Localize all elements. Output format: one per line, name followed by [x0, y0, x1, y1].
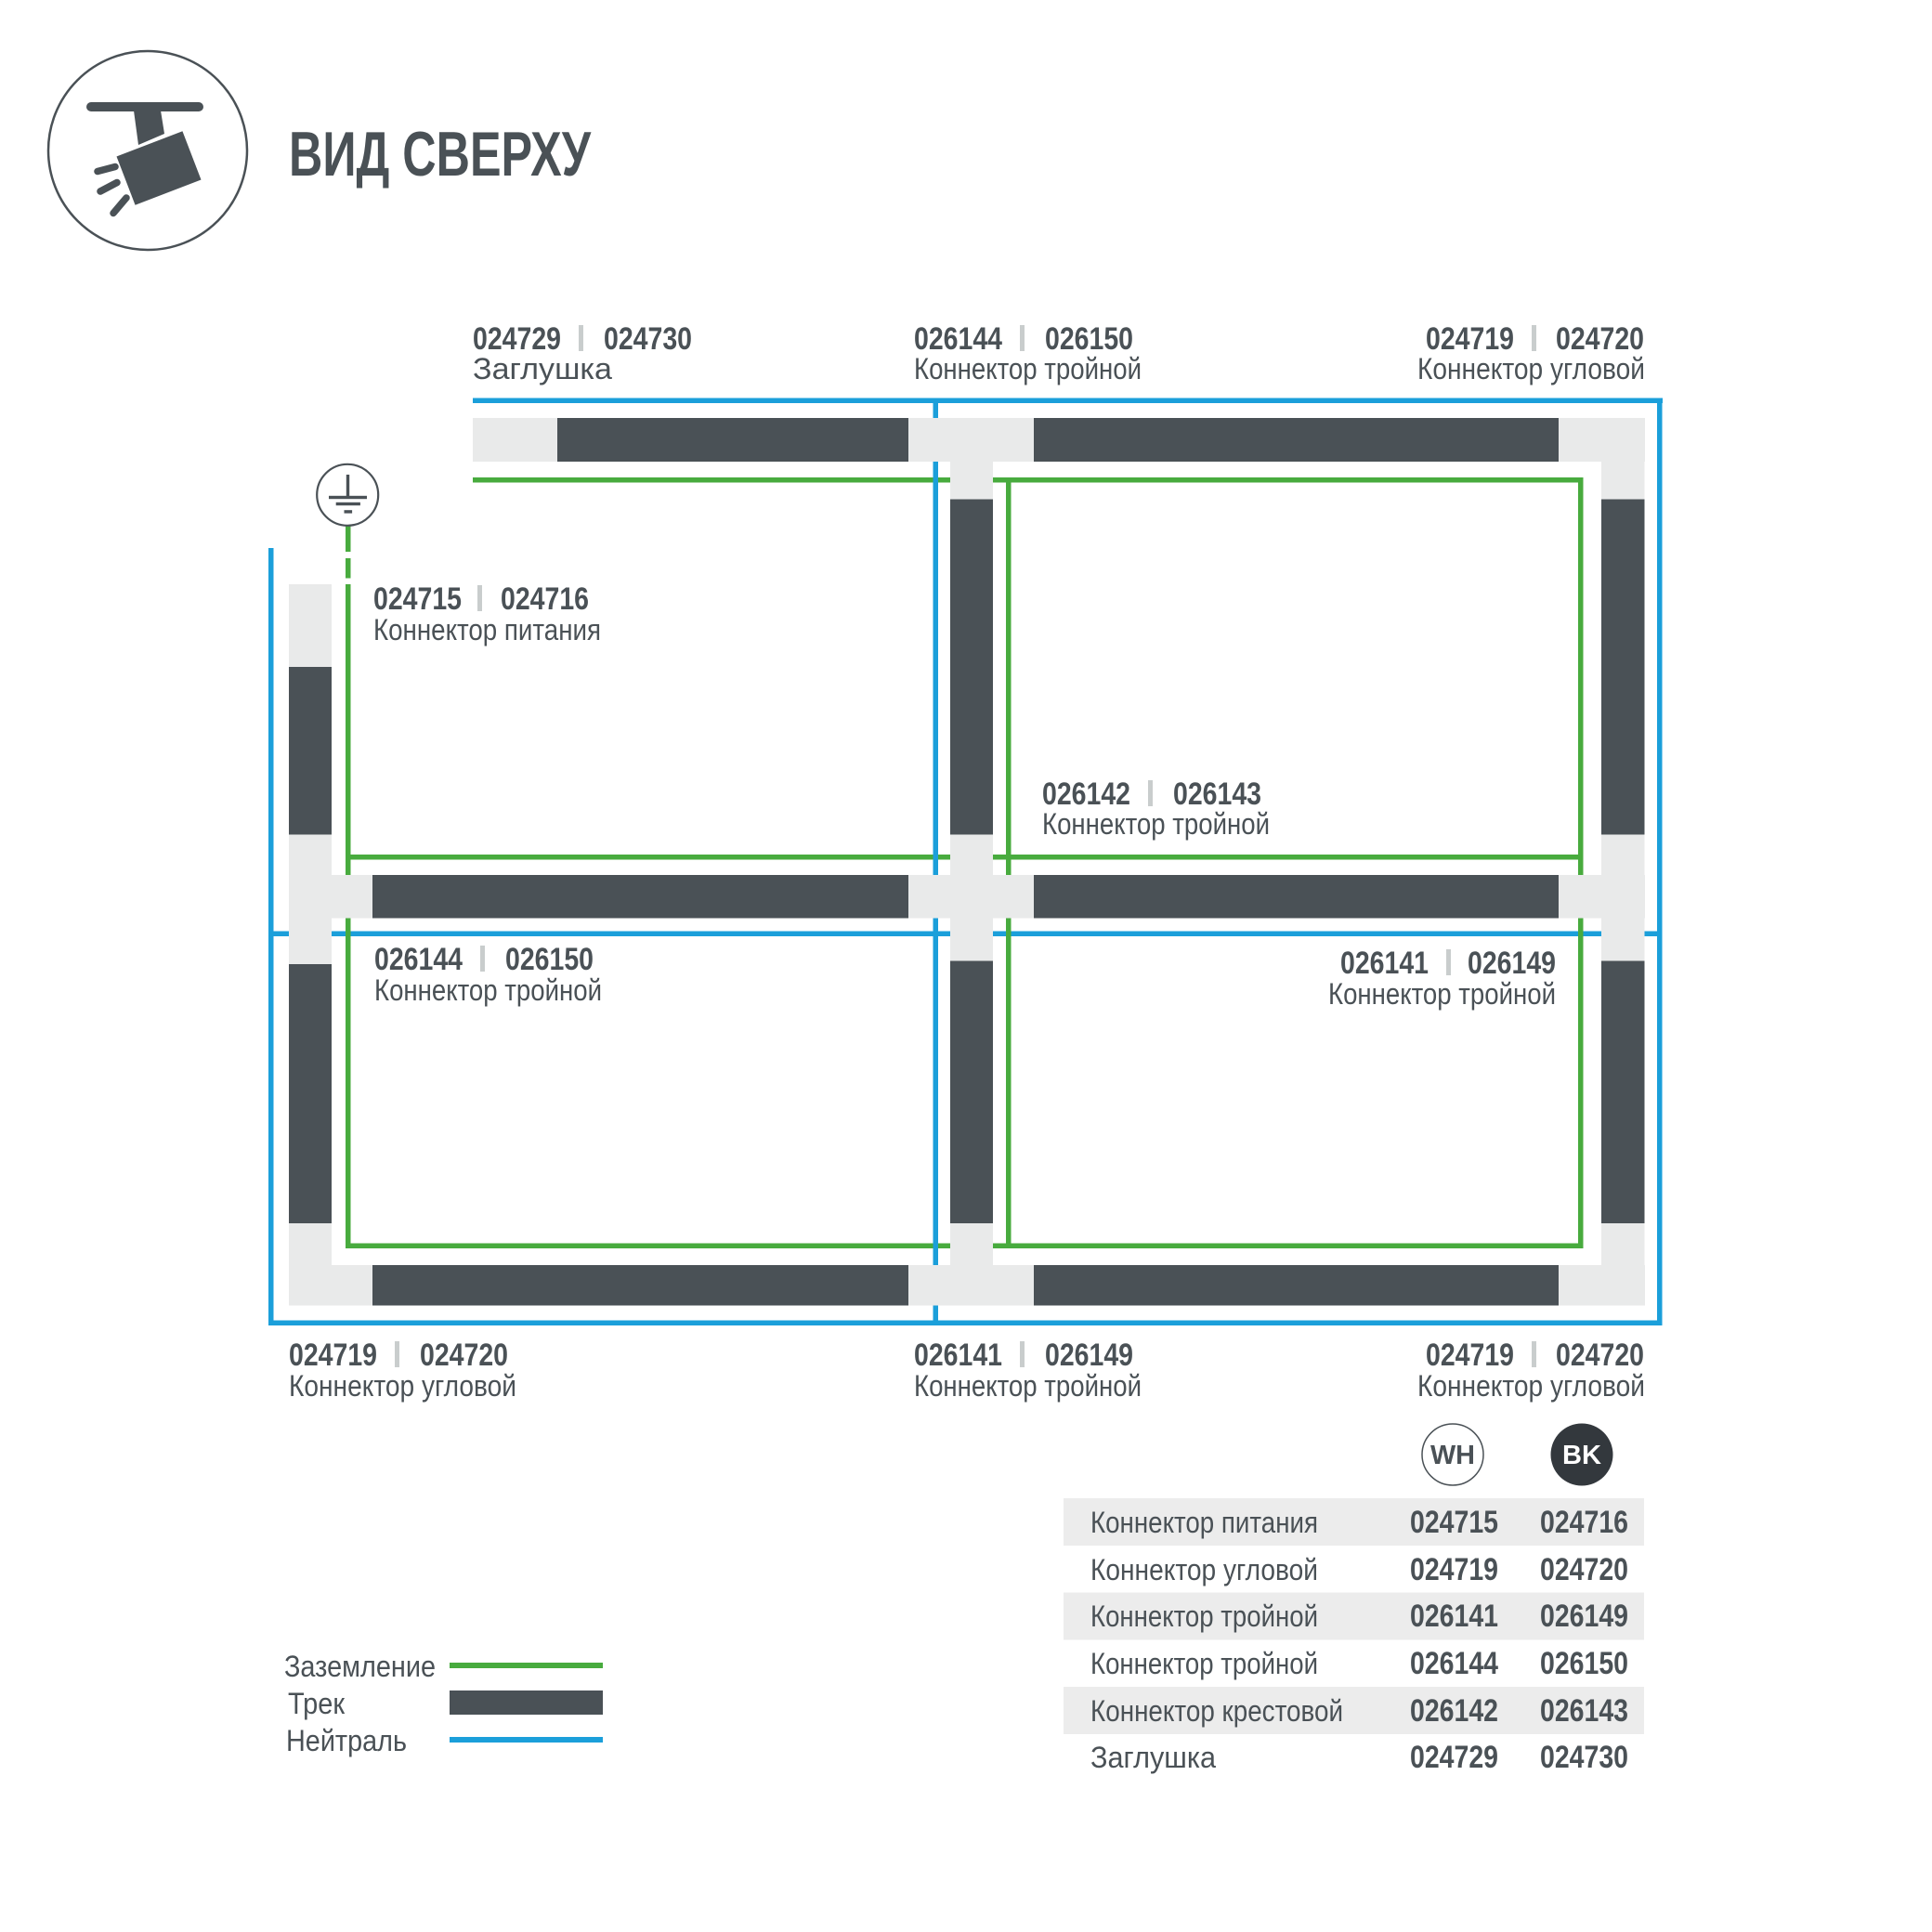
- svg-text:026150: 026150: [505, 942, 594, 977]
- svg-text:026144: 026144: [1410, 1646, 1498, 1681]
- svg-text:024719: 024719: [1426, 1338, 1514, 1373]
- svg-text:Коннектор тройной: Коннектор тройной: [914, 1369, 1142, 1403]
- svg-text:026143: 026143: [1540, 1693, 1628, 1729]
- svg-text:024715: 024715: [373, 581, 462, 617]
- svg-text:024720: 024720: [420, 1338, 508, 1373]
- svg-text:Коннектор тройной: Коннектор тройной: [1328, 977, 1556, 1011]
- svg-text:026150: 026150: [1540, 1646, 1628, 1681]
- svg-text:BK: BK: [1562, 1441, 1601, 1470]
- svg-text:026142: 026142: [1410, 1693, 1498, 1729]
- svg-text:Заземление: Заземление: [284, 1650, 436, 1683]
- svg-text:024716: 024716: [501, 581, 589, 617]
- svg-text:Коннектор тройной: Коннектор тройной: [374, 973, 602, 1007]
- svg-text:Коннектор крестовой: Коннектор крестовой: [1090, 1694, 1343, 1728]
- svg-text:Коннектор угловой: Коннектор угловой: [1090, 1553, 1318, 1586]
- svg-text:Коннектор тройной: Коннектор тройной: [1042, 807, 1270, 841]
- svg-text:026149: 026149: [1045, 1338, 1133, 1373]
- svg-text:024719: 024719: [289, 1338, 377, 1373]
- svg-text:024715: 024715: [1410, 1505, 1498, 1540]
- svg-text:Коннектор угловой: Коннектор угловой: [1417, 352, 1645, 385]
- svg-text:ВИД СВЕРХУ: ВИД СВЕРХУ: [289, 119, 592, 189]
- svg-text:Заглушка: Заглушка: [473, 352, 612, 385]
- svg-text:Трек: Трек: [288, 1687, 346, 1720]
- svg-text:Коннектор тройной: Коннектор тройной: [1090, 1599, 1318, 1633]
- svg-text:026141: 026141: [1340, 946, 1429, 981]
- svg-text:024719: 024719: [1410, 1552, 1498, 1587]
- svg-text:WH: WH: [1430, 1441, 1475, 1470]
- svg-text:Коннектор тройной: Коннектор тройной: [1090, 1647, 1318, 1680]
- svg-text:024716: 024716: [1540, 1505, 1628, 1540]
- svg-text:026144: 026144: [374, 942, 463, 977]
- svg-text:026141: 026141: [1410, 1599, 1498, 1634]
- svg-text:Коннектор тройной: Коннектор тройной: [914, 352, 1142, 385]
- svg-text:024730: 024730: [1540, 1740, 1628, 1775]
- svg-text:Коннектор угловой: Коннектор угловой: [1417, 1369, 1645, 1403]
- svg-text:Коннектор питания: Коннектор питания: [1090, 1506, 1318, 1539]
- svg-text:024729: 024729: [1410, 1740, 1498, 1775]
- svg-text:026149: 026149: [1468, 946, 1556, 981]
- svg-text:024720: 024720: [1556, 1338, 1644, 1373]
- svg-text:026149: 026149: [1540, 1599, 1628, 1634]
- svg-text:Коннектор угловой: Коннектор угловой: [289, 1369, 516, 1403]
- svg-text:Нейтраль: Нейтраль: [286, 1724, 407, 1757]
- svg-text:024720: 024720: [1540, 1552, 1628, 1587]
- svg-text:Заглушка: Заглушка: [1090, 1741, 1216, 1774]
- svg-text:Коннектор питания: Коннектор питания: [373, 613, 601, 646]
- svg-text:026141: 026141: [914, 1338, 1002, 1373]
- svg-text:024730: 024730: [604, 321, 692, 357]
